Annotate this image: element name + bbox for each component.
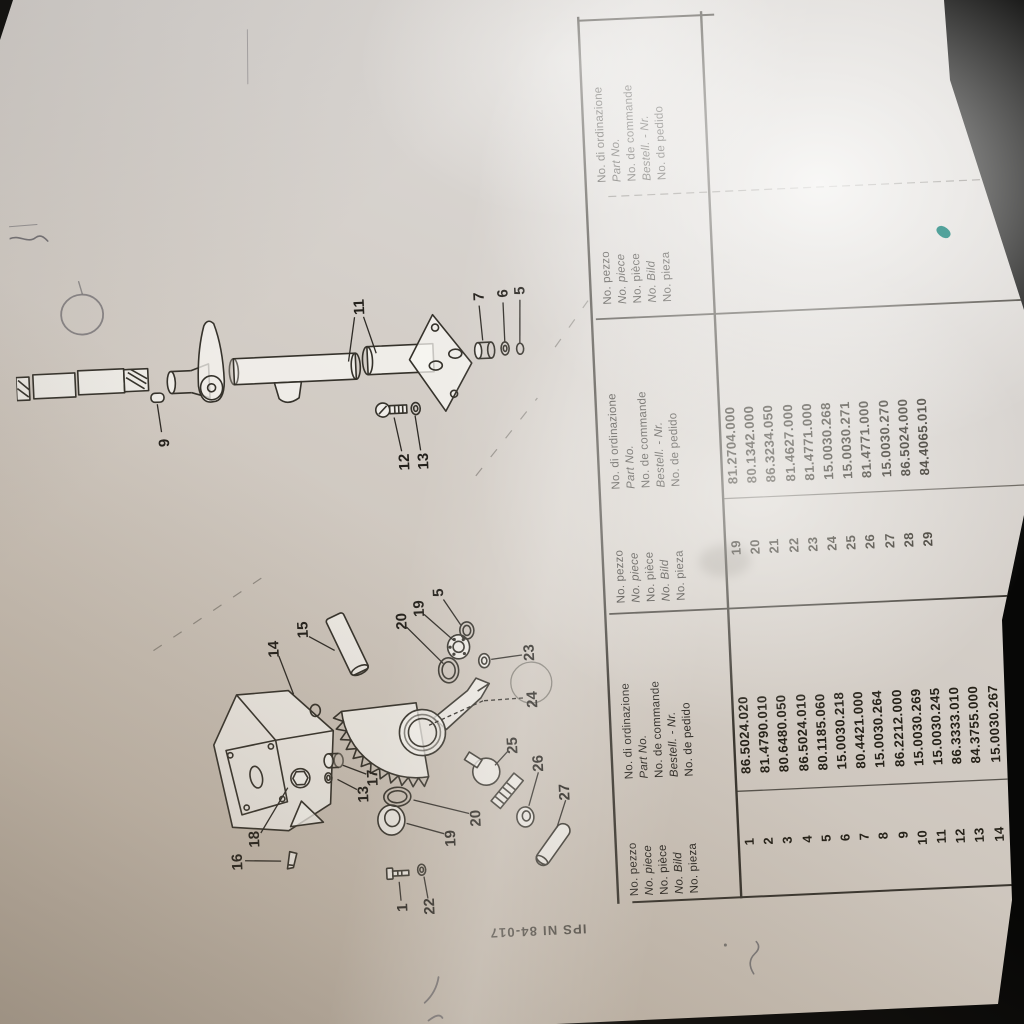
small-bolt xyxy=(387,867,409,879)
row-number: 10 xyxy=(914,830,931,879)
row-part-number: 15.0030.265 xyxy=(1004,684,1023,762)
callout-leader-line xyxy=(415,415,421,450)
part-callout-22: 22 xyxy=(421,898,439,915)
callout-leader-line xyxy=(407,822,445,836)
flange-screw xyxy=(375,402,407,417)
part-callout-13: 13 xyxy=(355,786,373,803)
callout-leader-line xyxy=(527,772,539,805)
knurled-nut xyxy=(478,653,490,667)
page-stamp: IPS NI 84-017 xyxy=(489,921,587,940)
callout-leader-line xyxy=(279,655,294,695)
ball-joint xyxy=(464,750,524,810)
row-number: 5 xyxy=(818,834,835,883)
row-number: 11 xyxy=(933,829,950,878)
part-callout-14: 14 xyxy=(265,640,283,658)
part-callout-19: 19 xyxy=(442,830,460,847)
housing-plug xyxy=(290,768,310,788)
callout-leader-line xyxy=(479,305,483,340)
small-lock-washer xyxy=(417,864,425,875)
sector-gear xyxy=(332,677,494,790)
callout-leader-line xyxy=(443,599,460,626)
small-bushing xyxy=(324,753,344,768)
row-number: 6 xyxy=(837,833,854,882)
bearing-cup xyxy=(377,804,405,835)
table-header-line: No. pieza xyxy=(686,839,703,893)
paper-sheet: IPS NI 84-017 91176512131415201952324252… xyxy=(0,0,1024,1024)
woodruff-key xyxy=(151,393,164,403)
row-number: 29 xyxy=(920,531,937,580)
part-callout-23: 23 xyxy=(521,644,539,661)
rotated-document-content: IPS NI 84-017 91176512131415201952324252… xyxy=(0,0,1024,1024)
part-callout-19: 19 xyxy=(410,600,428,617)
table-header-part-2: No. di ordinazionePart No.No. de command… xyxy=(605,390,684,490)
callout-leader-line xyxy=(424,877,428,899)
gear-housing xyxy=(211,689,337,834)
drop-arm xyxy=(165,321,226,404)
table-header-line: No. pièce xyxy=(629,249,646,303)
row-number: 23 xyxy=(805,536,822,585)
row-number: 8 xyxy=(876,831,893,880)
table-header-no-3: No. pezzoNo. pieceNo. pièceNo. BildNo. p… xyxy=(599,248,676,305)
callout-leader-line xyxy=(157,404,161,432)
steering-shaft-assembly xyxy=(14,307,527,434)
part-callout-1: 1 xyxy=(394,903,411,912)
row-number: 9 xyxy=(895,831,912,880)
row-number: 25 xyxy=(843,535,860,584)
part-callout-5: 5 xyxy=(511,286,528,295)
row-number: 7 xyxy=(857,832,874,881)
table-header-line: No. pièce xyxy=(642,548,659,602)
callout-leader-line xyxy=(503,302,505,341)
row-number: 28 xyxy=(901,532,918,581)
part-callout-11: 11 xyxy=(351,299,369,316)
flange-bushing xyxy=(474,342,495,359)
link-rod xyxy=(533,821,572,868)
mounting-flange xyxy=(408,313,474,413)
splined-shaft-end xyxy=(124,369,149,392)
callout-leader-line xyxy=(399,882,401,901)
part-callout-26: 26 xyxy=(530,755,548,772)
row-number: 2 xyxy=(761,837,778,886)
part-callout-18: 18 xyxy=(246,831,264,848)
row-number: 1 xyxy=(742,838,759,887)
row-number: 21 xyxy=(766,538,783,587)
row-number: 24 xyxy=(824,535,841,584)
callout-leader-line xyxy=(491,655,522,659)
row-number: 14 xyxy=(991,826,1008,875)
part-callout-6: 6 xyxy=(494,289,511,298)
table-header-line: No. pieza xyxy=(672,547,689,601)
row-number: 22 xyxy=(786,537,803,586)
sector-boss xyxy=(398,709,446,757)
part-callout-5: 5 xyxy=(430,588,447,597)
table-header-line: No. pieza xyxy=(659,248,676,302)
seal-ring xyxy=(383,787,411,807)
retaining-ring xyxy=(459,622,474,640)
callout-leader-line xyxy=(394,417,402,451)
pivot-pin xyxy=(325,612,370,678)
callout-leader-line xyxy=(407,626,444,666)
screw-lock-washer xyxy=(411,402,421,414)
callout-leader-line xyxy=(245,859,281,863)
part-callout-20: 20 xyxy=(467,810,485,827)
flange-washer xyxy=(501,342,510,355)
part-callout-12: 12 xyxy=(396,453,414,470)
row-number: 13 xyxy=(972,827,989,876)
photo-of-parts-catalog-page: IPS NI 84-017 91176512131415201952324252… xyxy=(0,0,1024,1024)
row-number: 12 xyxy=(953,828,970,877)
part-callout-27: 27 xyxy=(556,783,574,800)
part-callout-25: 25 xyxy=(504,737,522,754)
row-number: 4 xyxy=(799,835,816,884)
snap-ring xyxy=(516,343,523,354)
part-callout-15: 15 xyxy=(294,621,312,638)
row-number: 19 xyxy=(728,540,745,589)
table-header-part-3: No. di ordinazionePart No.No. de command… xyxy=(591,83,670,183)
cotter-pin xyxy=(287,851,298,868)
table-header-line: No. pièce xyxy=(656,841,673,895)
table-header-no-1: No. pezzoNo. pieceNo. pièceNo. BildNo. p… xyxy=(626,839,703,896)
part-callout-7: 7 xyxy=(471,292,488,301)
row-number: 15 xyxy=(1010,825,1024,874)
callout-leader-line xyxy=(518,300,522,343)
part-callout-24: 24 xyxy=(524,690,542,708)
callout-leader-line xyxy=(424,613,453,641)
shaft-segment xyxy=(33,373,76,399)
sector-shaft xyxy=(229,353,362,405)
part-callout-9: 9 xyxy=(156,438,173,447)
table-header-no-2: No. pezzoNo. pieceNo. pièceNo. BildNo. p… xyxy=(612,547,689,604)
shaft-arm xyxy=(274,382,302,403)
callout-leader-line xyxy=(309,635,335,651)
part-callout-20: 20 xyxy=(393,613,411,630)
table-header-part-1: No. di ordinazionePart No.No. de command… xyxy=(618,679,697,779)
row-number: 3 xyxy=(780,836,797,885)
row-number: 27 xyxy=(881,533,898,582)
dust-cup xyxy=(516,807,534,828)
callout-leader-line xyxy=(483,698,523,701)
part-callout-17: 17 xyxy=(364,769,382,786)
shaft-segment xyxy=(78,369,125,395)
part-callout-13: 13 xyxy=(415,453,433,470)
callout-leader-line xyxy=(413,798,469,816)
part-callout-16: 16 xyxy=(229,853,247,870)
row-number: 20 xyxy=(747,539,764,588)
row-number: 26 xyxy=(862,534,879,583)
